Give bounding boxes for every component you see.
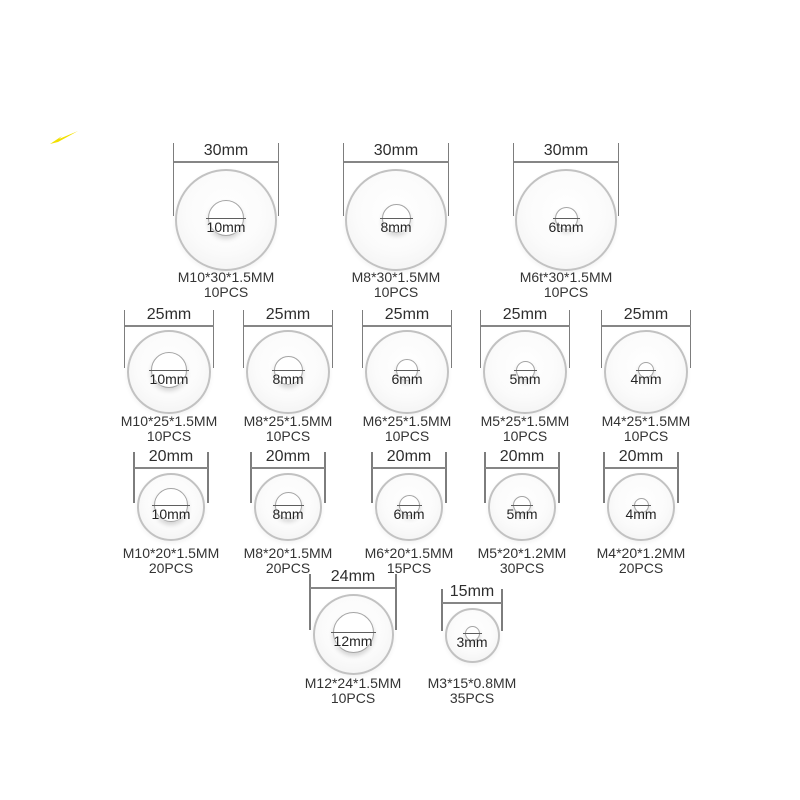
product-diagram: 30mm10mmM10*30*1.5MM10PCS30mm8mmM8*30*1.… (0, 0, 800, 800)
outer-diameter-label: 20mm (243, 448, 333, 466)
hole-diameter-label: 10mm (181, 219, 271, 235)
outer-diameter-label: 30mm (351, 142, 441, 160)
dim-line (363, 325, 452, 327)
hole-diameter-label: 6mm (364, 506, 454, 522)
dim-line (174, 161, 279, 163)
washer-qty-label: 10PCS (321, 285, 471, 300)
washer-spec-label: M4*25*1.5MM (571, 414, 721, 429)
hole-diameter-label: 8mm (243, 506, 333, 522)
dim-line (485, 467, 559, 469)
washer-spec-label: M10*30*1.5MM (151, 270, 301, 285)
outer-diameter-label: 20mm (364, 448, 454, 466)
outer-diameter-label: 15mm (427, 583, 517, 601)
hole-diameter-label: 5mm (480, 371, 570, 387)
dim-line (514, 161, 619, 163)
dim-line (244, 325, 333, 327)
washer-qty-label: 35PCS (397, 691, 547, 706)
outer-diameter-label: 30mm (521, 142, 611, 160)
dim-line (310, 587, 396, 589)
hole-diameter-label: 12mm (308, 633, 398, 649)
dim-tick-right (448, 143, 450, 216)
outer-diameter-label: 25mm (243, 306, 333, 324)
hole-diameter-label: 8mm (243, 371, 333, 387)
washer-qty-label: 10PCS (151, 285, 301, 300)
hole-diameter-label: 5mm (477, 506, 567, 522)
outer-diameter-label: 20mm (477, 448, 567, 466)
dim-line (372, 467, 446, 469)
hole-diameter-label: 4mm (596, 506, 686, 522)
dim-tick-right (618, 143, 620, 216)
washer-spec-label: M3*15*0.8MM (397, 676, 547, 691)
outer-diameter-label: 20mm (596, 448, 686, 466)
dim-tick-right (278, 143, 280, 216)
outer-diameter-label: 25mm (124, 306, 214, 324)
dim-line (602, 325, 691, 327)
dim-tick-left (343, 143, 345, 216)
dim-line (604, 467, 678, 469)
yellow-streak-icon (50, 131, 78, 145)
outer-diameter-label: 24mm (308, 568, 398, 586)
hole-diameter-label: 4mm (601, 371, 691, 387)
dim-line (134, 467, 208, 469)
washer-spec-label: M4*20*1.2MM (566, 546, 716, 561)
outer-diameter-label: 25mm (362, 306, 452, 324)
dim-line (442, 602, 502, 604)
outer-diameter-label: 20mm (126, 448, 216, 466)
dim-tick-left (173, 143, 175, 216)
dim-line (125, 325, 214, 327)
dim-line (481, 325, 570, 327)
yellow-streak-shape (50, 131, 78, 144)
dim-line (344, 161, 449, 163)
outer-diameter-label: 25mm (480, 306, 570, 324)
outer-diameter-label: 30mm (181, 142, 271, 160)
washer-spec-label: M8*30*1.5MM (321, 270, 471, 285)
dim-tick-left (513, 143, 515, 216)
hole-diameter-label: 6tmm (521, 219, 611, 235)
washer-qty-label: 10PCS (491, 285, 641, 300)
outer-diameter-label: 25mm (601, 306, 691, 324)
hole-diameter-label: 3mm (427, 634, 517, 650)
hole-diameter-label: 8mm (351, 219, 441, 235)
hole-diameter-label: 10mm (126, 506, 216, 522)
dim-line (251, 467, 325, 469)
washer-qty-label: 20PCS (566, 561, 716, 576)
washer-spec-label: M6t*30*1.5MM (491, 270, 641, 285)
hole-diameter-label: 10mm (124, 371, 214, 387)
hole-diameter-label: 6mm (362, 371, 452, 387)
washer-qty-label: 10PCS (571, 429, 721, 444)
